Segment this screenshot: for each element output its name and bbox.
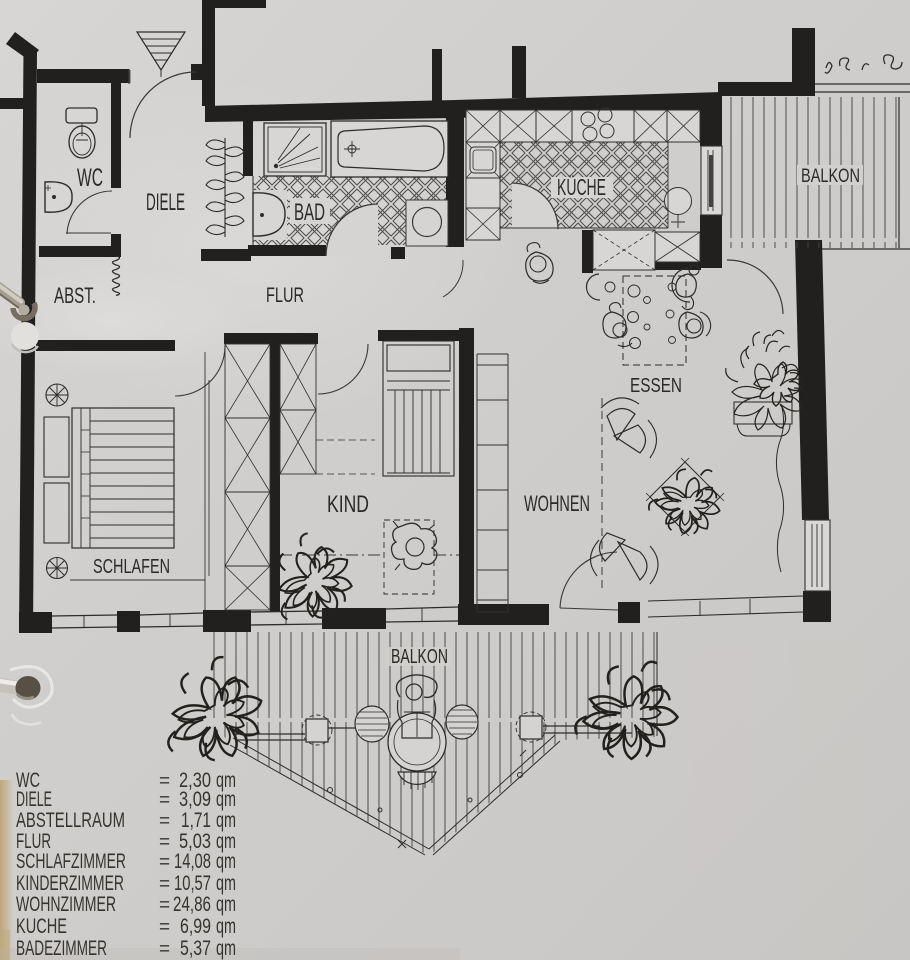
svg-text:BAD: BAD <box>294 199 325 226</box>
svg-text:ESSEN: ESSEN <box>630 375 682 397</box>
svg-text:qm: qm <box>216 788 236 811</box>
svg-text:=: = <box>159 832 170 853</box>
svg-text:=: = <box>159 874 170 895</box>
svg-text:qm: qm <box>216 809 236 832</box>
svg-text:BALKON: BALKON <box>801 166 860 187</box>
svg-text:SCHLAFZIMMER: SCHLAFZIMMER <box>16 850 126 873</box>
svg-text:=: = <box>159 771 170 792</box>
svg-text:KINDERZIMMER: KINDERZIMMER <box>16 872 124 895</box>
svg-text:qm: qm <box>216 893 236 916</box>
svg-text:WOHNZIMMER: WOHNZIMMER <box>16 893 116 916</box>
svg-text:1,71: 1,71 <box>181 809 211 832</box>
svg-text:=: = <box>159 917 170 938</box>
svg-text:BALKON: BALKON <box>391 646 448 668</box>
svg-text:ABSTELLRAUM: ABSTELLRAUM <box>16 809 125 832</box>
svg-text:=: = <box>159 895 170 916</box>
svg-text:SCHLAFEN: SCHLAFEN <box>93 556 170 578</box>
svg-text:qm: qm <box>216 872 236 895</box>
svg-text:6,99: 6,99 <box>180 915 211 938</box>
svg-text:DIELE: DIELE <box>16 788 52 811</box>
svg-text:WOHNEN: WOHNEN <box>524 491 590 516</box>
svg-text:=: = <box>159 852 170 873</box>
svg-text:qm: qm <box>216 915 236 938</box>
svg-text:14,08: 14,08 <box>174 850 211 873</box>
svg-text:10,57: 10,57 <box>174 872 211 895</box>
svg-text:KIND: KIND <box>327 491 369 518</box>
svg-text:3,09: 3,09 <box>179 788 211 811</box>
svg-text:KUCHE: KUCHE <box>16 915 67 938</box>
svg-text:=: = <box>159 811 170 832</box>
svg-text:KÜCHE: KÜCHE <box>557 174 606 200</box>
svg-text:24,86: 24,86 <box>173 893 211 916</box>
svg-text:BADEZIMMER: BADEZIMMER <box>16 937 107 960</box>
svg-text:=: = <box>159 939 170 960</box>
svg-text:ABST.: ABST. <box>54 283 96 308</box>
svg-text:=: = <box>159 790 170 811</box>
svg-text:DIELE: DIELE <box>146 189 185 216</box>
svg-text:FLUR: FLUR <box>266 284 304 307</box>
svg-text:qm: qm <box>216 850 236 873</box>
svg-text:5,37: 5,37 <box>180 937 211 960</box>
svg-text:WC: WC <box>77 164 103 192</box>
svg-text:qm: qm <box>216 937 236 960</box>
